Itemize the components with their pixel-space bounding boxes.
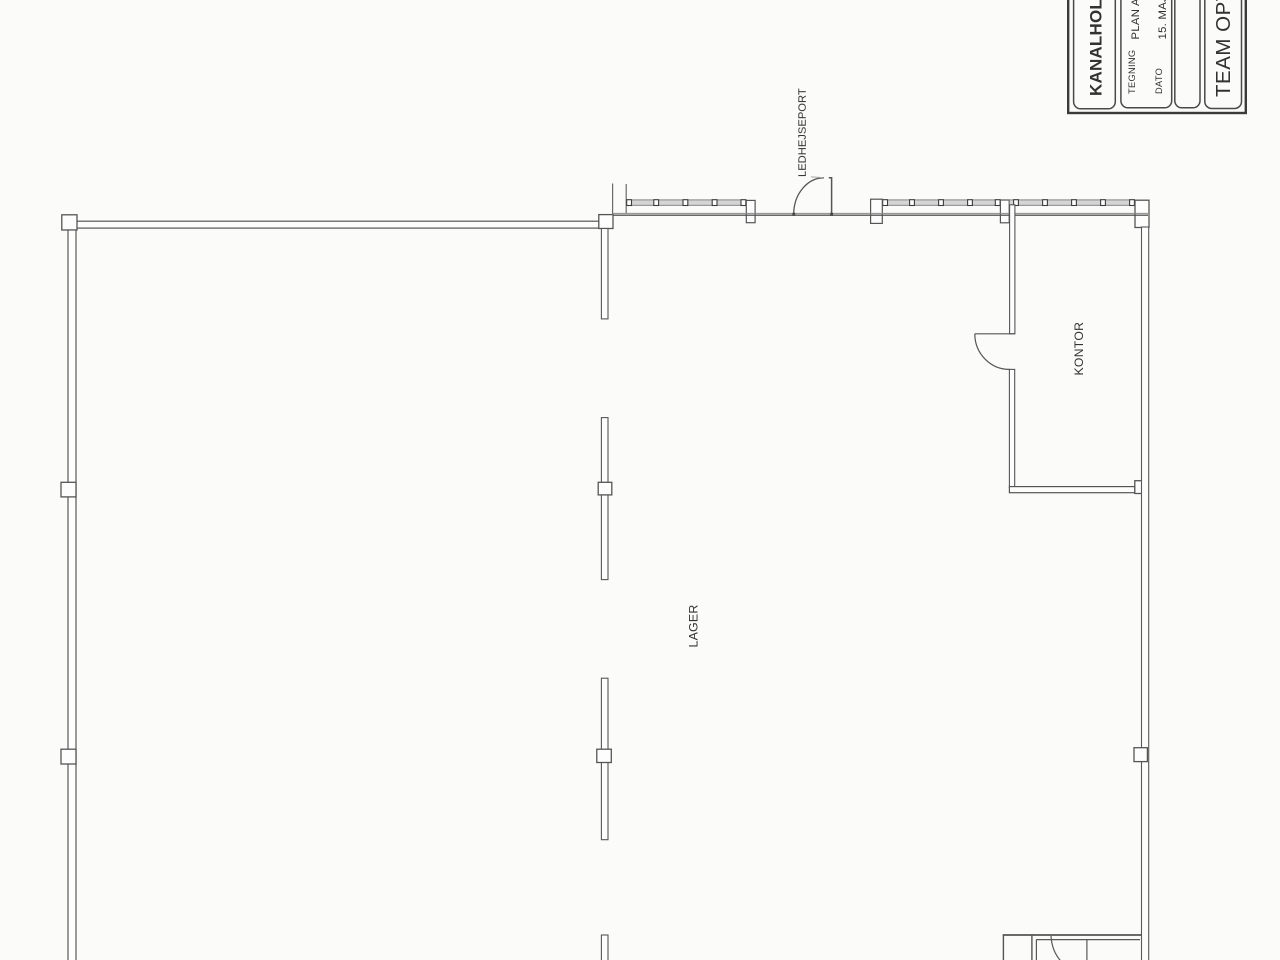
svg-text:LEDHEJSEPORT: LEDHEJSEPORT	[797, 88, 809, 177]
svg-text:DATO: DATO	[1154, 68, 1164, 94]
svg-text:15. MAJ 2: 15. MAJ 2	[1157, 0, 1169, 40]
svg-text:KANALHOLME: KANALHOLME	[1087, 0, 1106, 96]
svg-text:LAGER: LAGER	[686, 604, 700, 647]
svg-text:KONTOR: KONTOR	[1072, 322, 1086, 376]
svg-text:TEAM OPTIMER: TEAM OPTIMER	[1212, 0, 1235, 97]
svg-text:PLAN AF: PLAN AF	[1130, 0, 1142, 40]
svg-text:TEGNING: TEGNING	[1127, 50, 1137, 94]
